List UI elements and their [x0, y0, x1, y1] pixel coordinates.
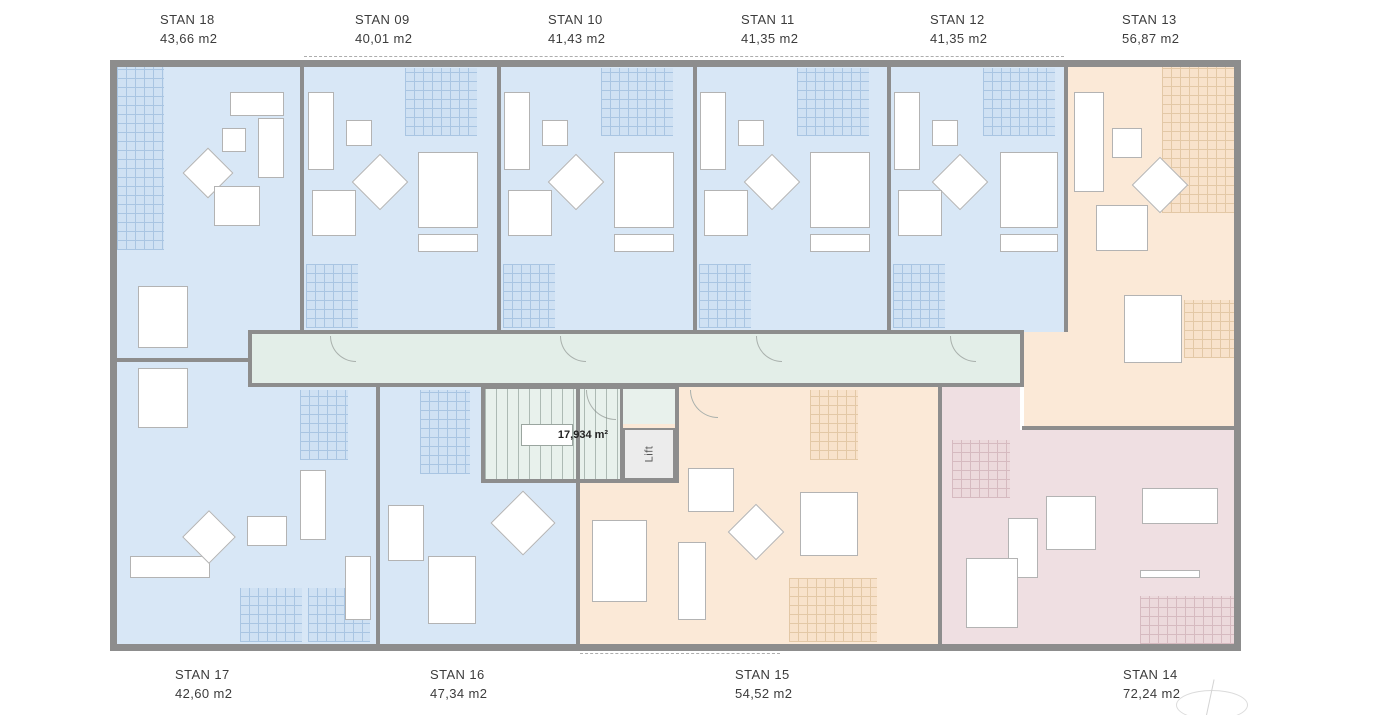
wall-segment [110, 60, 117, 651]
furniture-rect [312, 190, 356, 236]
lift-cabin: Lift [623, 428, 675, 480]
furniture-rect [504, 92, 530, 170]
tiled-area-blue [300, 390, 348, 460]
tiled-area-blue [117, 67, 164, 250]
apartment-name: STAN 14 [1123, 667, 1178, 682]
wall-segment [1234, 60, 1241, 651]
wall-segment [675, 385, 679, 483]
overhang-dashed-line [580, 653, 780, 654]
furniture-rect [894, 92, 920, 170]
apartment-label-stan-17: STAN 1742,60 m2 [175, 666, 232, 704]
furniture-rect [230, 92, 284, 116]
furniture-rect [1000, 152, 1058, 228]
furniture-rect [592, 520, 647, 602]
furniture-rect [688, 468, 734, 512]
apartment-area: 47,34 m2 [430, 685, 487, 704]
tiled-area-blue [306, 264, 358, 328]
furniture-rect [700, 92, 726, 170]
furniture-rect [1112, 128, 1142, 158]
tiled-area-blue [983, 68, 1055, 136]
wall-segment [1022, 426, 1236, 430]
furniture-rect [800, 492, 858, 556]
wall-segment [497, 64, 501, 332]
wall-segment [110, 644, 1241, 651]
furniture-rect [898, 190, 942, 236]
tiled-area-blue [797, 68, 869, 136]
wall-segment [1020, 330, 1024, 387]
tiled-area-peach [810, 390, 858, 460]
furniture-rect [345, 556, 371, 620]
furniture-rect [932, 120, 958, 146]
wall-segment [938, 385, 942, 646]
furniture-rect [1046, 496, 1096, 550]
tiled-area-blue [405, 68, 477, 136]
furniture-rect [308, 92, 334, 170]
furniture-rect [614, 152, 674, 228]
furniture-rect [1074, 92, 1104, 192]
wall-segment [114, 358, 250, 362]
tiled-area-blue [240, 588, 302, 642]
wall-segment [376, 385, 380, 646]
stair-area-label: 17,934 m² [540, 429, 626, 441]
wall-segment [1064, 64, 1068, 332]
tiled-area-peach [1184, 300, 1234, 358]
wall-segment [110, 60, 1241, 67]
tiled-area-blue [699, 264, 751, 328]
furniture-rect [418, 152, 478, 228]
tiled-area-blue [601, 68, 673, 136]
furniture-rect [346, 120, 372, 146]
furniture-rect [1140, 570, 1200, 578]
overhang-dashed-line [304, 56, 1064, 57]
wall-segment [300, 64, 304, 332]
wall-segment [887, 64, 891, 332]
furniture-rect [1124, 295, 1182, 363]
furniture-rect [247, 516, 287, 546]
tiled-area-blue [503, 264, 555, 328]
region-stan-14-upper [942, 387, 1020, 430]
tiled-area-mauve [1140, 596, 1234, 644]
furniture-rect [508, 190, 552, 236]
apartment-area: 42,60 m2 [175, 685, 232, 704]
tiled-area-mauve [952, 440, 1010, 498]
region-corridor [252, 334, 1020, 385]
apartment-name: STAN 16 [430, 667, 485, 682]
furniture-rect [704, 190, 748, 236]
wall-segment [248, 330, 1024, 334]
floor-plan-page: STAN 1843,66 m2STAN 0940,01 m2STAN 1041,… [0, 0, 1376, 715]
furniture-rect [138, 368, 188, 428]
region-lift-lobby [623, 389, 675, 424]
wall-segment [693, 64, 697, 332]
furniture-rect [222, 128, 246, 152]
floor-plan-canvas: 17,934 m² Lift [0, 0, 1376, 715]
furniture-rect [614, 234, 674, 252]
furniture-rect [258, 118, 284, 178]
site-sketch-decoration [1176, 690, 1248, 715]
furniture-rect [738, 120, 764, 146]
furniture-rect [966, 558, 1018, 628]
tiled-area-blue [420, 390, 470, 474]
furniture-rect [388, 505, 424, 561]
furniture-rect [418, 234, 478, 252]
apartment-name: STAN 17 [175, 667, 230, 682]
apartment-label-stan-14: STAN 1472,24 m2 [1123, 666, 1180, 704]
lift-label: Lift [643, 446, 655, 463]
furniture-rect [138, 286, 188, 348]
furniture-rect [428, 556, 476, 624]
furniture-rect [542, 120, 568, 146]
furniture-rect [1096, 205, 1148, 251]
furniture-rect [214, 186, 260, 226]
furniture-rect [810, 152, 870, 228]
apartment-area: 54,52 m2 [735, 685, 792, 704]
apartment-label-stan-15: STAN 1554,52 m2 [735, 666, 792, 704]
apartment-name: STAN 15 [735, 667, 790, 682]
furniture-rect [678, 542, 706, 620]
tiled-area-blue [893, 264, 945, 328]
furniture-rect [1142, 488, 1218, 524]
furniture-rect [1000, 234, 1058, 252]
furniture-rect [300, 470, 326, 540]
apartment-area: 72,24 m2 [1123, 685, 1180, 704]
apartment-label-stan-16: STAN 1647,34 m2 [430, 666, 487, 704]
furniture-rect [810, 234, 870, 252]
tiled-area-peach [789, 578, 877, 642]
furniture-rect [130, 556, 210, 578]
